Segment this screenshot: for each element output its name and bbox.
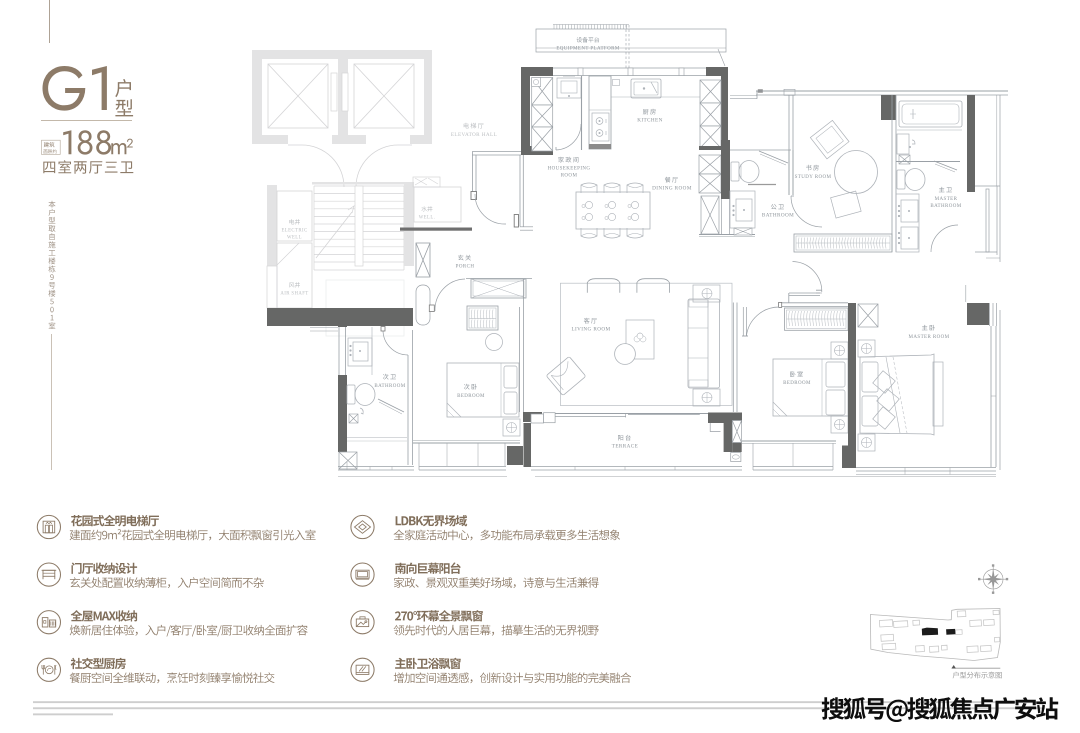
svg-text:WELL: WELL	[287, 236, 302, 241]
svg-text:BEDROOM: BEDROOM	[783, 381, 811, 386]
svg-text:MASTER ROOM: MASTER ROOM	[909, 335, 950, 340]
svg-text:DINING ROOM: DINING ROOM	[652, 186, 692, 192]
svg-text:WELL.: WELL.	[419, 216, 436, 221]
svg-text:AIR SHAFT: AIR SHAFT	[280, 292, 308, 297]
svg-text:STUDY ROOM: STUDY ROOM	[795, 175, 832, 180]
svg-text:TERRACE: TERRACE	[612, 444, 638, 450]
svg-text:BEDROOM: BEDROOM	[457, 394, 485, 399]
svg-text:KITCHEN: KITCHEN	[637, 118, 663, 124]
svg-text:HOUSEKEEPING: HOUSEKEEPING	[548, 167, 591, 172]
svg-text:LIVING ROOM: LIVING ROOM	[571, 327, 610, 333]
svg-text:ELEVATOR HALL: ELEVATOR HALL	[451, 132, 497, 138]
svg-text:PORCH: PORCH	[456, 265, 475, 270]
svg-text:MASTER: MASTER	[935, 197, 958, 202]
svg-text:ROOM: ROOM	[561, 174, 578, 179]
svg-text:EQUIPMENT PLATFORM: EQUIPMENT PLATFORM	[556, 47, 620, 52]
svg-text:BATHROOM: BATHROOM	[762, 213, 794, 219]
svg-text:BATHROOM: BATHROOM	[374, 384, 405, 389]
svg-text:BATHROOM: BATHROOM	[930, 204, 961, 209]
svg-text:ELECTRIC: ELECTRIC	[281, 229, 307, 234]
